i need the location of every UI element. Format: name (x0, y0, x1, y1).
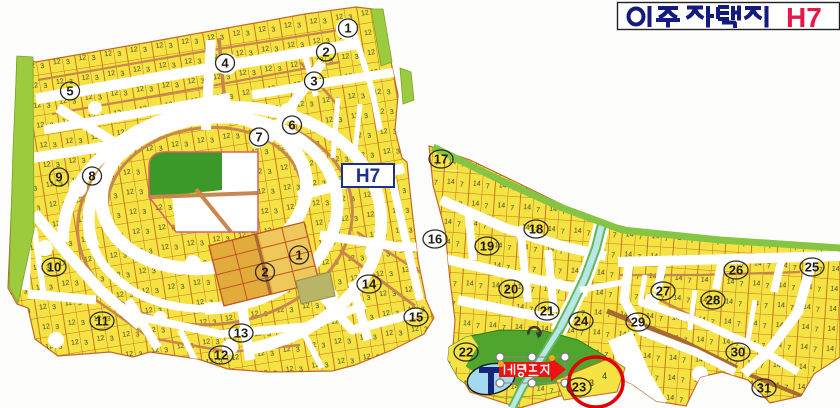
svg-text:14: 14 (362, 277, 377, 292)
svg-text:8: 8 (88, 169, 95, 184)
svg-text:H7: H7 (356, 166, 380, 187)
svg-text:2: 2 (261, 265, 268, 280)
svg-text:6: 6 (288, 118, 295, 133)
svg-text:9: 9 (55, 170, 62, 185)
svg-text:2: 2 (322, 45, 329, 60)
svg-text:22: 22 (459, 345, 473, 360)
svg-text:13: 13 (234, 326, 248, 341)
svg-text:4: 4 (221, 56, 229, 71)
svg-text:H7: H7 (786, 2, 822, 33)
svg-text:5: 5 (66, 84, 73, 99)
svg-text:1: 1 (295, 248, 302, 263)
svg-text:31: 31 (757, 381, 771, 396)
svg-text:4: 4 (602, 371, 607, 381)
svg-text:16: 16 (428, 232, 442, 247)
svg-text:11: 11 (95, 314, 109, 329)
svg-text:19: 19 (480, 239, 494, 254)
svg-text:26: 26 (729, 263, 743, 278)
svg-text:17: 17 (434, 152, 448, 167)
svg-text:23: 23 (572, 380, 586, 395)
svg-text:10: 10 (47, 260, 61, 275)
svg-text:15: 15 (409, 310, 423, 325)
svg-text:30: 30 (731, 345, 745, 360)
svg-text:7: 7 (255, 130, 262, 145)
svg-text:28: 28 (706, 293, 720, 308)
svg-text:3: 3 (310, 74, 317, 89)
svg-text:27: 27 (656, 284, 670, 299)
svg-text:20: 20 (504, 282, 518, 297)
svg-text:29: 29 (631, 315, 645, 330)
svg-text:24: 24 (574, 314, 589, 329)
svg-text:12: 12 (214, 348, 228, 363)
svg-text:25: 25 (805, 260, 819, 275)
svg-text:1: 1 (344, 21, 351, 36)
svg-text:18: 18 (529, 222, 543, 237)
svg-text:21: 21 (540, 304, 554, 319)
